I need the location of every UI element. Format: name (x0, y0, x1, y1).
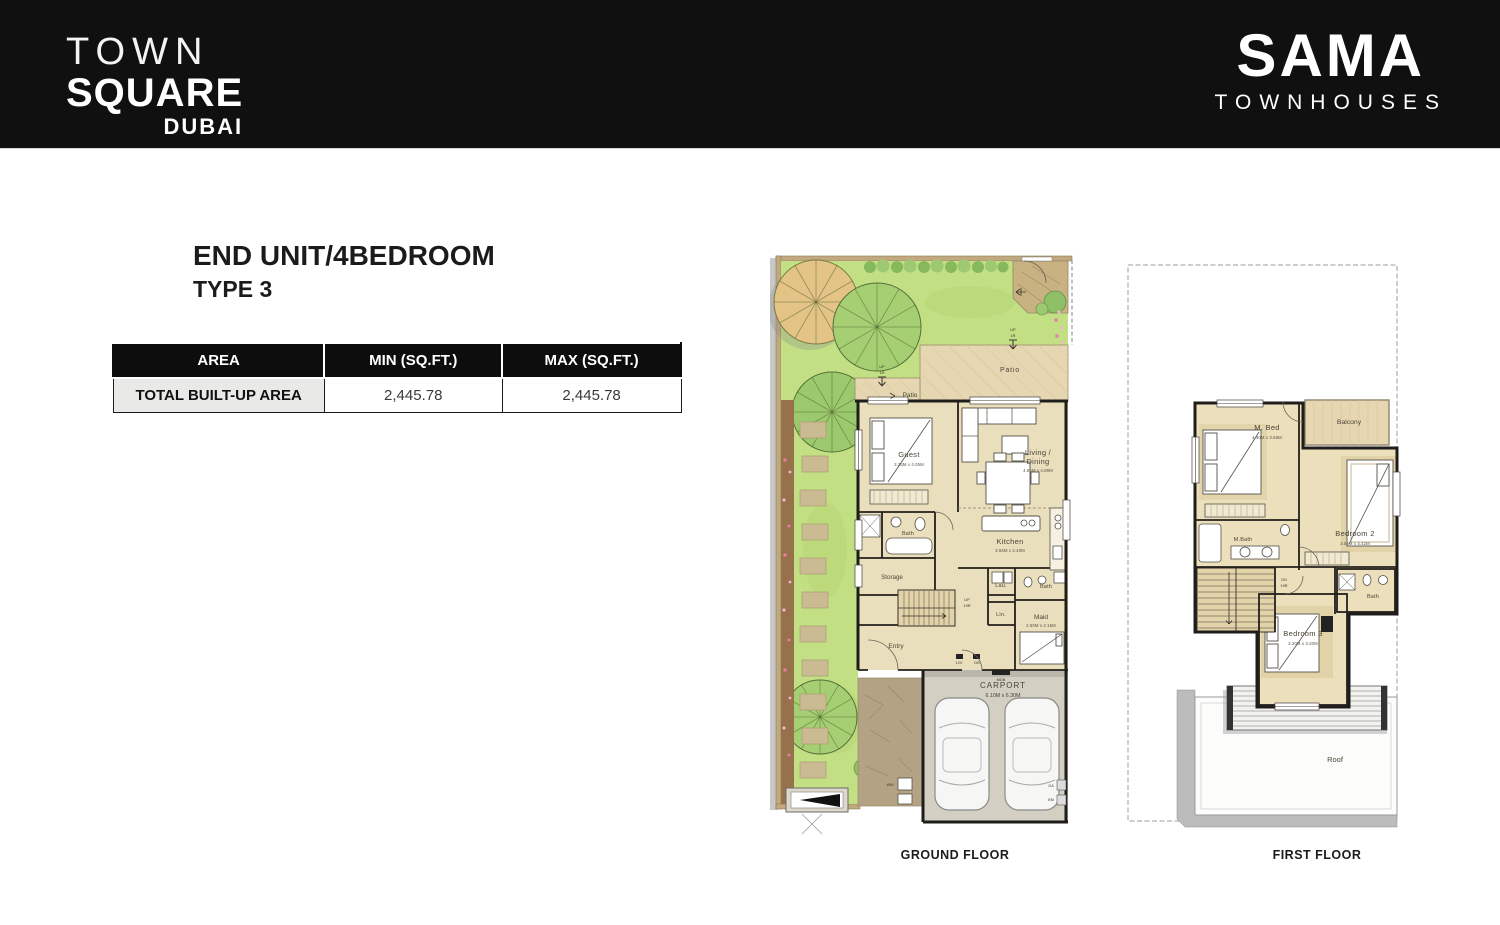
label-bedroom2-dim: 3.55M x 4.42M (1340, 541, 1370, 546)
label-db: DB (974, 660, 980, 665)
first-floor-caption: FIRST FLOOR (1227, 848, 1407, 862)
label-maid-dim: 2.50M x 2.15M (1026, 623, 1056, 628)
area-table-header-row: AREA MIN (SQ.FT.) MAX (SQ.FT.) (113, 343, 681, 378)
label-wm: WM (887, 782, 894, 787)
label-kitchen-dim: 3.56M x 2.40M (995, 548, 1025, 553)
label-stairs-dn: DN (1281, 577, 1287, 582)
logo-sama: SAMA (1215, 26, 1447, 86)
label-living-1: Living / (1025, 448, 1052, 457)
label-bedroom2: Bedroom 2 (1335, 529, 1374, 538)
label-up-main: UP (1010, 327, 1016, 332)
label-carport-dim: 6.10M x 6.30M (985, 693, 1020, 699)
unit-title: END UNIT/4BEDROOM TYPE 3 (193, 240, 495, 303)
maid-bed (1020, 632, 1064, 664)
town-square-dubai-logo: TOWN SQUARE DUBAI (66, 33, 243, 138)
stairs-down (1197, 568, 1275, 632)
label-em: EM (1048, 797, 1054, 802)
label-carport: CARPORT (980, 681, 1026, 690)
cell-total-built-up-area: TOTAL BUILT-UP AREA (113, 378, 324, 413)
label-living-dim: 4.85M x 4.89M (1023, 468, 1053, 473)
logo-town: TOWN (66, 33, 243, 71)
cell-min-value: 2,445.78 (324, 378, 502, 413)
header-bar: TOWN SQUARE DUBAI SAMA TOWNHOUSES (0, 0, 1500, 149)
col-header-max: MAX (SQ.FT.) (502, 343, 681, 378)
label-12v: 12V (956, 660, 963, 665)
ground-floor-plan: UP 1R Patio UP 1R Patio Guest 3.25M x 4.… (770, 250, 1075, 840)
garden-gate (786, 788, 848, 834)
label-maid: Maid (1034, 614, 1048, 621)
logo-dubai: DUBAI (66, 116, 243, 138)
label-roof: Roof (1327, 755, 1344, 764)
first-floor-plan: M. Bed 4.40M x 3.65M Balcony Bedroom 2 3… (1125, 262, 1405, 847)
label-bedroom3: Bedroom 3 (1283, 629, 1322, 638)
label-laundry: Lau. (995, 583, 1007, 589)
label-mbed: M. Bed (1254, 423, 1280, 432)
label-living-2: Dining (1026, 457, 1049, 466)
unit-title-line1: END UNIT/4BEDROOM (193, 240, 495, 272)
label-storage: Storage (881, 574, 903, 581)
label-bath-ff: Bath (1367, 594, 1379, 600)
label-entry: Entry (888, 643, 904, 650)
area-table: AREA MIN (SQ.FT.) MAX (SQ.FT.) TOTAL BUI… (112, 342, 682, 413)
car-2 (1005, 698, 1059, 810)
label-kitchen: Kitchen (996, 537, 1023, 546)
label-stairs-up: UP (964, 597, 970, 602)
area-table-data-row: TOTAL BUILT-UP AREA 2,445.78 2,445.78 (113, 378, 681, 413)
label-guest: Guest (898, 450, 920, 459)
label-1r-main: 1R (1011, 333, 1016, 338)
duct-shaft (1321, 616, 1333, 632)
stairs-up (898, 590, 955, 626)
label-1r-front: 1R (880, 370, 885, 375)
car-1 (935, 698, 989, 810)
sama-townhouses-logo: SAMA TOWNHOUSES (1215, 26, 1447, 113)
label-balcony: Balcony (1337, 419, 1362, 426)
label-mbed-dim: 4.40M x 3.65M (1252, 435, 1282, 440)
label-mbath: M.Bath (1234, 537, 1253, 543)
laundry-fixtures (992, 572, 1012, 583)
label-stairs-19r: 19R (963, 603, 970, 608)
label-guest-dim: 3.25M x 4.05M (894, 462, 924, 467)
ground-floor-caption: GROUND FLOOR (865, 848, 1045, 862)
label-up-front: UP (879, 364, 885, 369)
logo-townhouses: TOWNHOUSES (1215, 92, 1447, 113)
label-patio-front: Patio (903, 392, 918, 399)
label-ga: GA (1048, 783, 1054, 788)
label-bedroom3-dim: 3.30M x 3.20M (1288, 641, 1318, 646)
label-bath: Bath (902, 531, 914, 537)
col-header-area: AREA (113, 343, 324, 378)
guest-wardrobe (870, 490, 928, 504)
logo-square: SQUARE (66, 73, 243, 113)
col-header-min: MIN (SQ.FT.) (324, 343, 502, 378)
label-stairs-19r: 19R (1280, 583, 1287, 588)
label-patio-main: Patio (1000, 367, 1020, 374)
patio-main (920, 345, 1068, 401)
cell-max-value: 2,445.78 (502, 378, 681, 413)
unit-title-line2: TYPE 3 (193, 276, 495, 302)
label-linen: Lin. (996, 612, 1006, 618)
label-maid-bath: Bath (1040, 584, 1052, 590)
